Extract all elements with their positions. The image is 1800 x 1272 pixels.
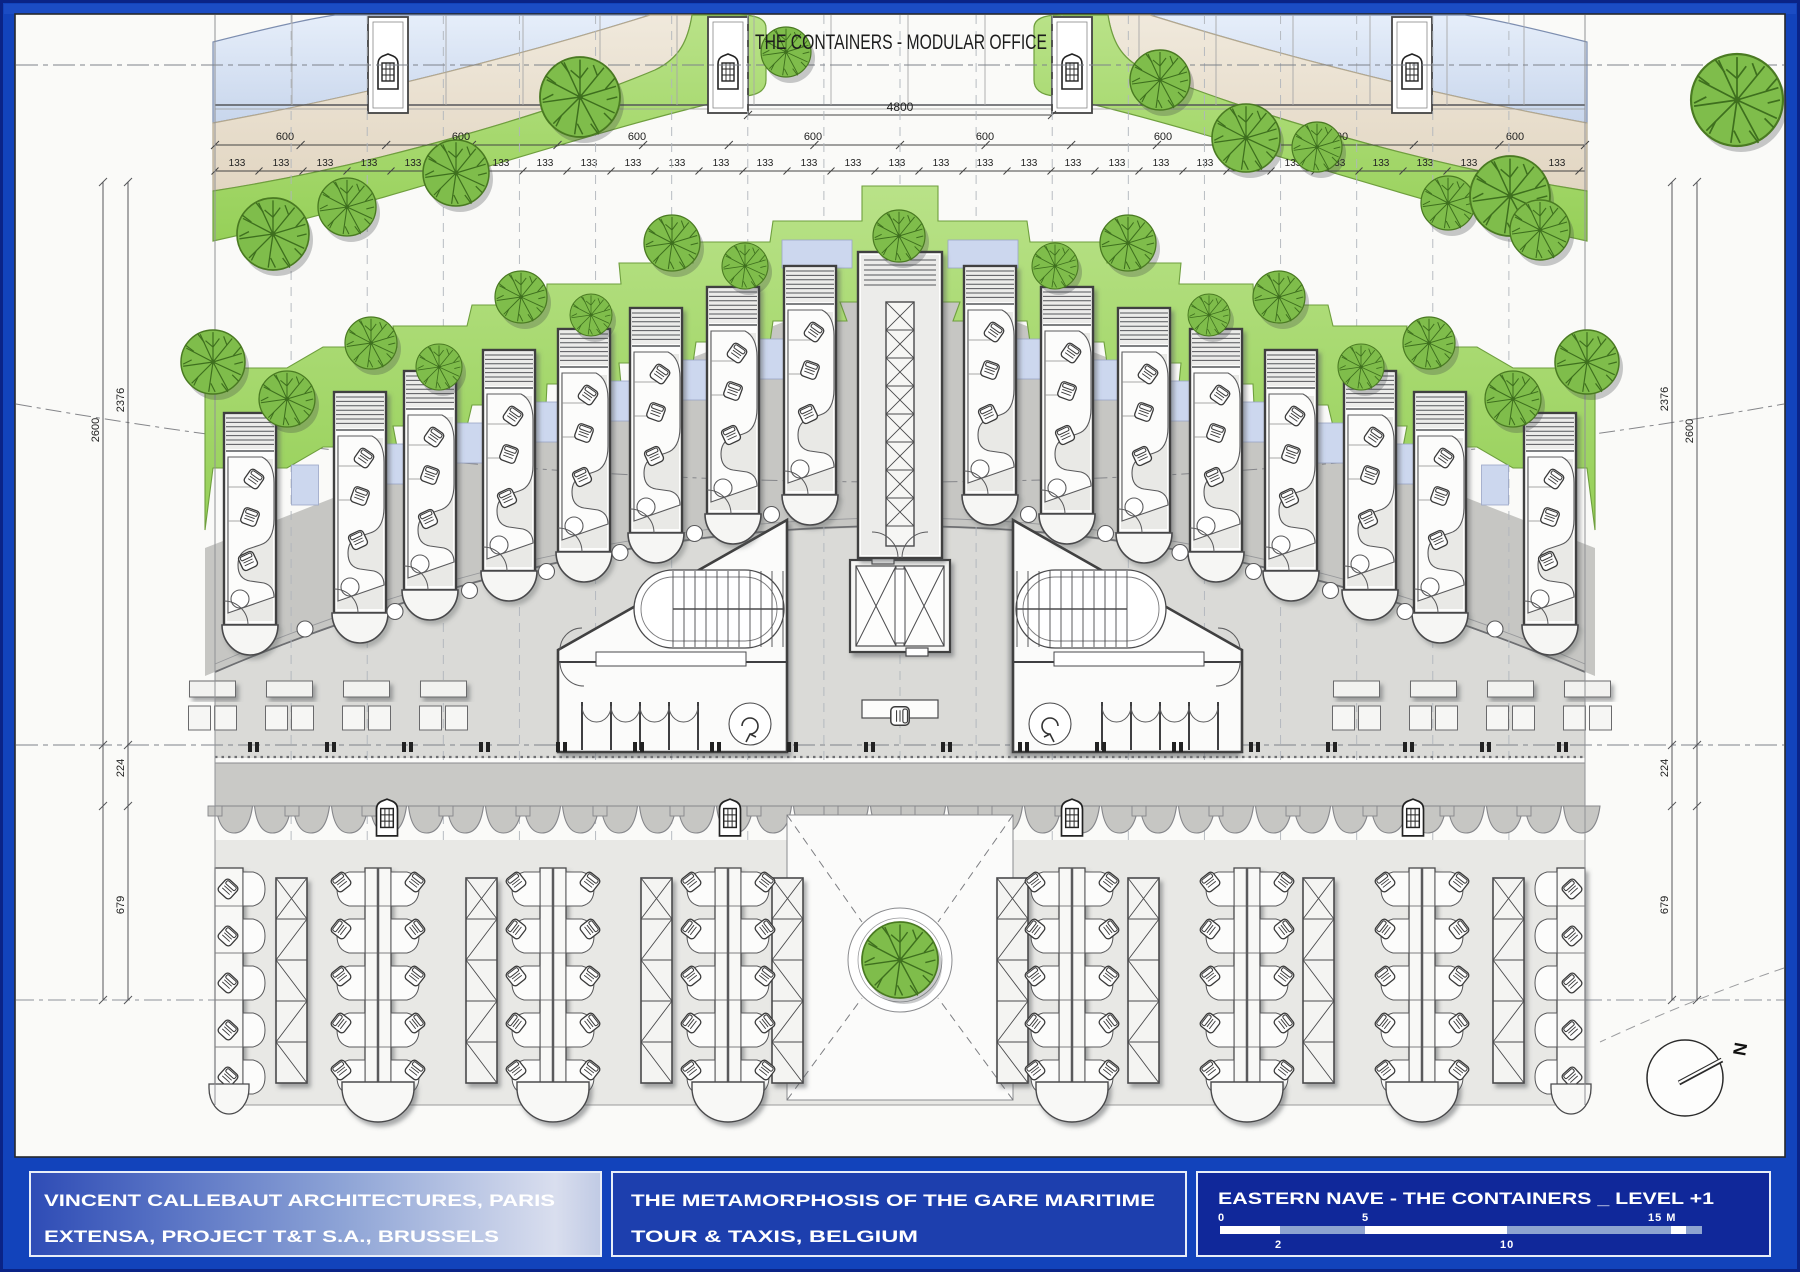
svg-text:133: 133 <box>889 158 906 169</box>
svg-text:679: 679 <box>115 896 127 914</box>
svg-text:133: 133 <box>273 158 290 169</box>
svg-text:133: 133 <box>493 158 510 169</box>
svg-text:2: 2 <box>1275 1239 1282 1251</box>
svg-text:600: 600 <box>628 131 646 143</box>
svg-text:10: 10 <box>1500 1239 1514 1251</box>
svg-text:133: 133 <box>845 158 862 169</box>
svg-text:600: 600 <box>1154 131 1172 143</box>
svg-text:2600: 2600 <box>1684 419 1696 443</box>
svg-text:133: 133 <box>317 158 334 169</box>
svg-text:THE CONTAINERS - MODULAR OFFIC: THE CONTAINERS - MODULAR OFFICE <box>755 31 1047 54</box>
svg-text:133: 133 <box>713 158 730 169</box>
svg-text:133: 133 <box>669 158 686 169</box>
svg-text:133: 133 <box>537 158 554 169</box>
svg-text:2600: 2600 <box>90 418 102 442</box>
svg-text:133: 133 <box>229 158 246 169</box>
svg-text:133: 133 <box>933 158 950 169</box>
svg-text:600: 600 <box>976 131 994 143</box>
svg-text:15 M: 15 M <box>1648 1212 1676 1224</box>
svg-text:133: 133 <box>1197 158 1214 169</box>
svg-text:TOUR & TAXIS, BELGIUM: TOUR & TAXIS, BELGIUM <box>631 1227 918 1246</box>
svg-text:133: 133 <box>757 158 774 169</box>
svg-text:5: 5 <box>1362 1212 1369 1224</box>
svg-text:224: 224 <box>1659 759 1671 777</box>
svg-text:133: 133 <box>977 158 994 169</box>
svg-text:133: 133 <box>1461 158 1478 169</box>
svg-text:679: 679 <box>1659 896 1671 914</box>
svg-text:133: 133 <box>1549 158 1566 169</box>
svg-text:THE METAMORPHOSIS OF THE GARE: THE METAMORPHOSIS OF THE GARE MARITIME <box>631 1191 1155 1210</box>
svg-text:224: 224 <box>115 759 127 777</box>
svg-text:133: 133 <box>1417 158 1434 169</box>
svg-text:2376: 2376 <box>115 388 127 412</box>
svg-text:133: 133 <box>801 158 818 169</box>
svg-text:133: 133 <box>1153 158 1170 169</box>
svg-text:133: 133 <box>625 158 642 169</box>
svg-text:133: 133 <box>1065 158 1082 169</box>
svg-text:133: 133 <box>361 158 378 169</box>
svg-text:EASTERN NAVE - THE CONTAINERS: EASTERN NAVE - THE CONTAINERS _ LEVEL +1 <box>1218 1189 1714 1208</box>
svg-text:2376: 2376 <box>1659 387 1671 411</box>
svg-text:600: 600 <box>804 131 822 143</box>
svg-text:133: 133 <box>405 158 422 169</box>
svg-text:0: 0 <box>1218 1212 1225 1224</box>
svg-text:133: 133 <box>1021 158 1038 169</box>
svg-text:133: 133 <box>1373 158 1390 169</box>
svg-text:EXTENSA, PROJECT T&T S.A., BRU: EXTENSA, PROJECT T&T S.A., BRUSSELS <box>44 1227 499 1246</box>
svg-text:VINCENT CALLEBAUT ARCHITECTURE: VINCENT CALLEBAUT ARCHITECTURES, PARIS <box>44 1191 555 1210</box>
svg-text:133: 133 <box>1109 158 1126 169</box>
